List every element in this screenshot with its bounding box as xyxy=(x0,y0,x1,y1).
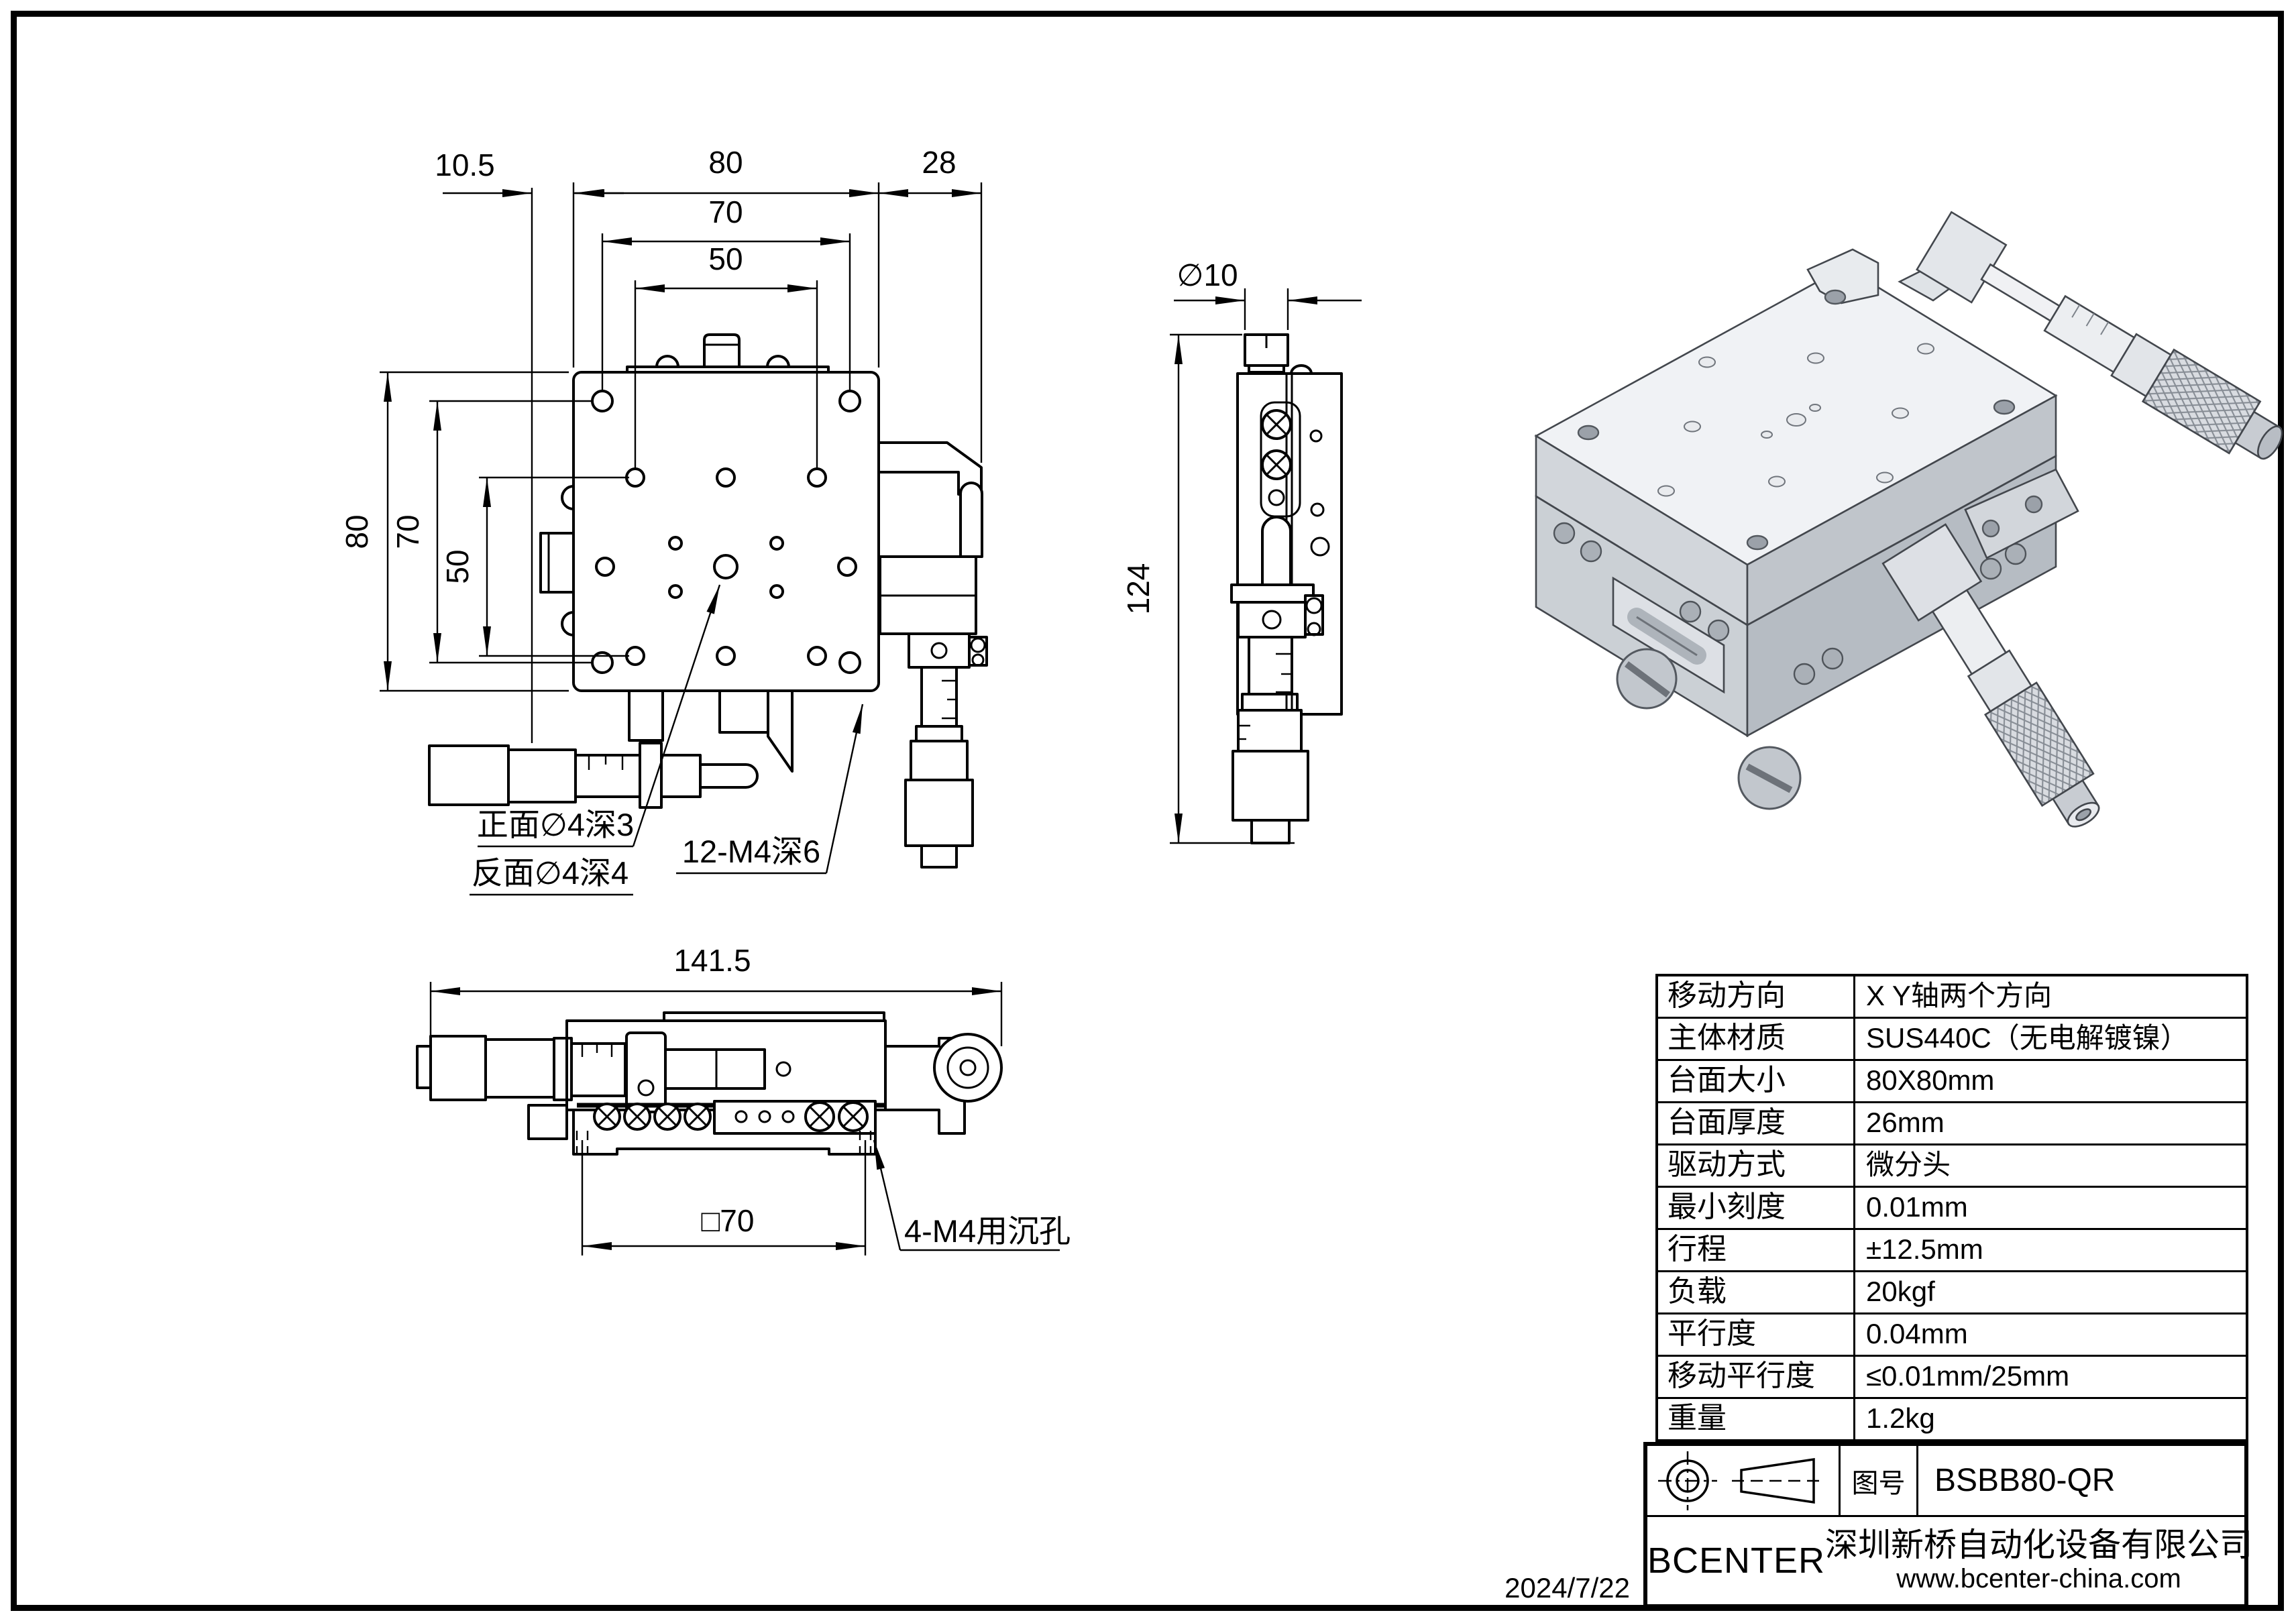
spec-label: 台面大小 xyxy=(1658,1061,1855,1101)
dim-70-left: 70 xyxy=(390,514,425,549)
spec-value: 0.01mm xyxy=(1855,1188,2246,1228)
table-row: 重量1.2kg xyxy=(1658,1397,2246,1439)
center-hole xyxy=(714,555,737,578)
spec-label: 移动方向 xyxy=(1658,976,1855,1017)
table-row: 主体材质SUS440C（无电解镀镍） xyxy=(1658,1017,2246,1059)
title-block: 图号 BSBB80-QR BCENTER 深圳新桥自动化设备有限公司 www.b… xyxy=(1643,1442,2248,1608)
dim-80-left: 80 xyxy=(339,514,374,549)
drawing-sheet: .o4{stroke:#000;stroke-width:4;fill:none… xyxy=(0,0,2296,1623)
brand: BCENTER xyxy=(1647,1517,1825,1604)
table-row: 最小刻度0.01mm xyxy=(1658,1186,2246,1228)
spec-value: 0.04mm xyxy=(1855,1314,2246,1355)
table-row: 平行度0.04mm xyxy=(1658,1312,2246,1355)
base-screws xyxy=(594,1101,875,1133)
spec-label: 重量 xyxy=(1658,1399,1855,1439)
spec-value: ≤0.01mm/25mm xyxy=(1855,1357,2246,1397)
spec-label: 负载 xyxy=(1658,1272,1855,1312)
spec-value: 20kgf xyxy=(1855,1272,2246,1312)
table-row: 行程±12.5mm xyxy=(1658,1228,2246,1270)
spec-value: 80X80mm xyxy=(1855,1061,2246,1101)
table-row: 台面大小80X80mm xyxy=(1658,1059,2246,1101)
spec-label: 台面厚度 xyxy=(1658,1103,1855,1143)
projection-symbol xyxy=(1647,1446,1841,1515)
spec-value: X Y轴两个方向 xyxy=(1855,976,2246,1017)
dim-70-top: 70 xyxy=(708,194,743,229)
y-axis-micrometer xyxy=(906,634,987,867)
dim-124: 124 xyxy=(1121,563,1156,615)
table-row: 移动方向X Y轴两个方向 xyxy=(1658,976,2246,1017)
lock-knob xyxy=(704,335,739,367)
dim-28: 28 xyxy=(922,145,956,180)
side-view: ∅10 124 xyxy=(1121,258,1362,843)
company-name: 深圳新桥自动化设备有限公司 xyxy=(1825,1527,2252,1564)
dim-50-top: 50 xyxy=(708,241,743,276)
spec-label: 行程 xyxy=(1658,1230,1855,1270)
drawing-no: BSBB80-QR xyxy=(1918,1446,2244,1515)
drawing-date: 2024/7/22 xyxy=(1429,1572,1630,1604)
spec-value: 1.2kg xyxy=(1855,1399,2246,1439)
dim-80-top: 80 xyxy=(708,145,743,180)
table-row: 负载20kgf xyxy=(1658,1270,2246,1312)
x-axis-micrometer xyxy=(429,743,757,807)
isometric-view xyxy=(1536,212,2295,842)
table-row: 驱动方式微分头 xyxy=(1658,1143,2246,1186)
spec-label: 平行度 xyxy=(1658,1314,1855,1355)
table-row: 台面厚度26mm xyxy=(1658,1101,2246,1143)
spec-label: 驱动方式 xyxy=(1658,1145,1855,1186)
dim-141-5: 141.5 xyxy=(673,943,751,978)
table-row: 移动平行度≤0.01mm/25mm xyxy=(1658,1355,2246,1397)
bottom-view: 141.5 xyxy=(417,943,1071,1255)
spec-label: 最小刻度 xyxy=(1658,1188,1855,1228)
dim-50-left: 50 xyxy=(440,549,475,583)
dim-10-5: 10.5 xyxy=(435,148,495,182)
dim-square-70: □70 xyxy=(702,1203,755,1238)
spec-value: 26mm xyxy=(1855,1103,2246,1143)
company-website: www.bcenter-china.com xyxy=(1896,1564,2181,1594)
spec-table: 移动方向X Y轴两个方向 主体材质SUS440C（无电解镀镍） 台面大小80X8… xyxy=(1655,974,2248,1442)
spec-value: 微分头 xyxy=(1855,1145,2246,1186)
spec-label: 移动平行度 xyxy=(1658,1357,1855,1397)
drawing-no-label: 图号 xyxy=(1841,1446,1918,1515)
dim-diameter-10: ∅10 xyxy=(1177,258,1238,292)
spec-value: ±12.5mm xyxy=(1855,1230,2246,1270)
label-thread: 12-M4深6 xyxy=(682,834,820,869)
spec-value: SUS440C（无电解镀镍） xyxy=(1855,1019,2246,1059)
spec-label: 主体材质 xyxy=(1658,1019,1855,1059)
front-view: 10.5 80 28 70 50 80 70 xyxy=(339,145,987,895)
label-counterbore: 4-M4用沉孔 xyxy=(904,1213,1071,1249)
label-back-hole: 反面∅4深4 xyxy=(472,855,628,891)
label-front-hole: 正面∅4深3 xyxy=(477,807,634,842)
